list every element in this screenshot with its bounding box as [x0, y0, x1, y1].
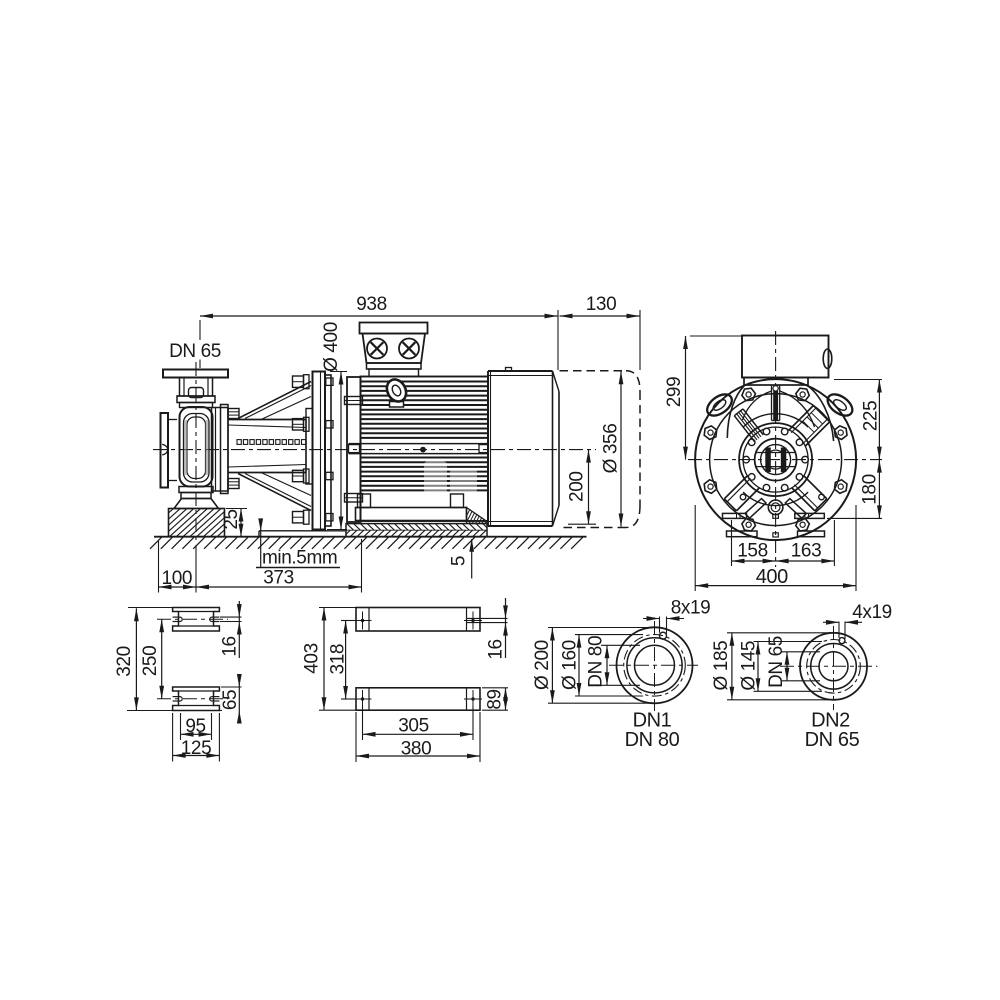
svg-text:DN 80: DN 80: [625, 729, 680, 751]
svg-text:130: 130: [586, 294, 617, 315]
svg-text:163: 163: [791, 540, 822, 561]
svg-text:400: 400: [756, 566, 788, 588]
svg-text:25: 25: [221, 509, 242, 529]
svg-text:158: 158: [737, 540, 768, 561]
svg-text:225: 225: [860, 401, 881, 432]
svg-text:200: 200: [566, 471, 587, 502]
svg-text:380: 380: [401, 738, 432, 759]
svg-text:125: 125: [181, 738, 212, 759]
svg-text:250: 250: [140, 646, 161, 677]
svg-text:Ø 356: Ø 356: [600, 424, 621, 474]
svg-text:DN 65: DN 65: [766, 636, 787, 688]
svg-text:Ø 185: Ø 185: [711, 641, 732, 691]
svg-text:16: 16: [486, 639, 507, 659]
svg-text:min.5mm: min.5mm: [262, 548, 337, 569]
svg-text:373: 373: [263, 568, 294, 589]
svg-text:320: 320: [114, 646, 135, 677]
svg-text:100: 100: [162, 568, 193, 589]
svg-text:4x19: 4x19: [852, 602, 892, 623]
svg-text:Ø 200: Ø 200: [532, 640, 553, 690]
svg-text:89: 89: [485, 689, 506, 709]
svg-text:Ø 145: Ø 145: [738, 641, 759, 691]
svg-text:938: 938: [356, 294, 387, 315]
svg-text:DN 65: DN 65: [169, 341, 221, 362]
svg-text:5: 5: [448, 556, 469, 566]
svg-text:318: 318: [327, 644, 348, 675]
svg-text:403: 403: [301, 643, 322, 674]
svg-text:65: 65: [220, 690, 241, 710]
svg-text:8x19: 8x19: [671, 597, 711, 618]
svg-text:305: 305: [398, 716, 429, 737]
svg-text:180: 180: [859, 474, 880, 505]
svg-text:Ø 160: Ø 160: [559, 640, 580, 690]
svg-text:299: 299: [664, 377, 685, 408]
svg-text:DN 65: DN 65: [805, 729, 860, 751]
svg-text:DN 80: DN 80: [586, 636, 607, 688]
svg-text:95: 95: [185, 716, 205, 737]
svg-text:Ø 400: Ø 400: [321, 322, 342, 372]
svg-text:16: 16: [220, 636, 241, 656]
